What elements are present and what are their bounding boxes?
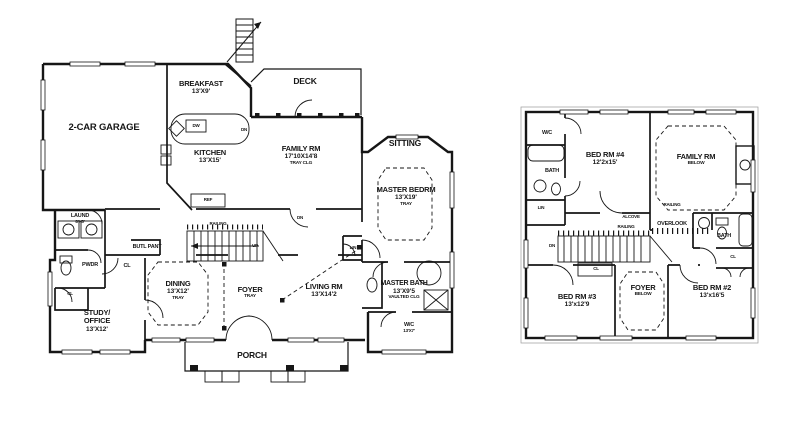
label-living-rm: LIVING RM 13'X14'2 <box>306 283 343 299</box>
porch-posts <box>190 365 348 371</box>
label-alcove: ALCOVE <box>622 214 640 219</box>
stairs-2f <box>558 233 672 262</box>
label-railing-overlook-2f: RAILING <box>663 202 680 207</box>
doors-2f <box>553 118 749 285</box>
doors-1f <box>58 100 396 340</box>
label-kitchen: KITCHEN 13'X15' <box>194 149 226 165</box>
label-laundry: LAUND 8'X5' <box>71 213 89 224</box>
label-railing-1f: RAILING <box>209 221 226 226</box>
label-dishwasher: DW <box>192 123 199 128</box>
label-master-bath: MASTER BATH 13'X9'5 VAULTED CLG <box>380 280 427 300</box>
label-bath-right-2f: BATH <box>717 233 731 239</box>
label-powder-room: PWDR <box>82 262 98 268</box>
label-dn-stairs-2f: DN <box>549 243 555 248</box>
label-dining: DINING 13'X12' TRAY <box>165 280 190 301</box>
label-foyer-below: FOYER BELOW <box>631 284 656 298</box>
label-master-bedrm: MASTER BEDRM 13'X19' TRAY <box>377 186 436 207</box>
label-up-stairs: UP <box>252 243 258 248</box>
label-foyer: FOYER TRAY <box>238 286 263 300</box>
label-deck: DECK <box>293 77 316 87</box>
label-breakfast: BREAKFAST 13'X9' <box>179 80 223 96</box>
label-railing-stairs-2f: RAILING <box>617 224 634 229</box>
label-dn-family-door: DN <box>297 215 303 220</box>
label-closet-study: CL <box>67 291 73 296</box>
floor-plan-drawing <box>0 0 800 427</box>
label-garage: 2-CAR GARAGE <box>69 123 140 134</box>
label-butlers-pantry: BUTL PANT <box>133 244 162 250</box>
label-sitting: SITTING <box>389 139 421 149</box>
fixtures-2f <box>528 145 754 246</box>
label-bedrm4: BED RM #4 12'2x15' <box>586 151 624 167</box>
label-study-office: STUDY/ OFFICE 13'X12' <box>84 309 110 333</box>
label-closet-bedrm2: CL <box>730 254 736 259</box>
label-overlook: OVERLOOK <box>657 221 687 227</box>
label-family-rm: FAMILY RM 17'10X14'8 TRAY CLG <box>282 145 321 166</box>
label-linen-2f: LIN <box>538 205 545 210</box>
label-walkin-closet-2f: W/C <box>542 130 552 136</box>
label-bath-left-2f: BATH <box>545 168 559 174</box>
label-linen-1f: LIN <box>350 245 357 250</box>
interior-walls-1f <box>55 64 452 352</box>
label-bedrm3: BED RM #3 13'x12'9 <box>558 293 596 309</box>
label-dn-deck-door: DN <box>241 127 247 132</box>
floor-plan-canvas: 2-CAR GARAGE BREAKFAST 13'X9' KITCHEN 13… <box>0 0 800 427</box>
stairs-1f <box>187 227 283 261</box>
second-floor-walls <box>521 107 758 343</box>
label-closet-hall: CL <box>124 263 131 269</box>
label-family-below: FAMILY RM BELOW <box>677 153 716 167</box>
label-porch: PORCH <box>237 351 267 361</box>
label-refrigerator: REF <box>204 197 212 202</box>
label-walkin-closet-1f: W/C 13'X7' <box>403 322 414 333</box>
porch-outline <box>185 342 348 382</box>
deck-stairs <box>225 19 261 86</box>
label-bedrm2: BED RM #2 13'x16'5 <box>693 284 731 300</box>
label-closet-bedrm3: CL <box>593 266 599 271</box>
